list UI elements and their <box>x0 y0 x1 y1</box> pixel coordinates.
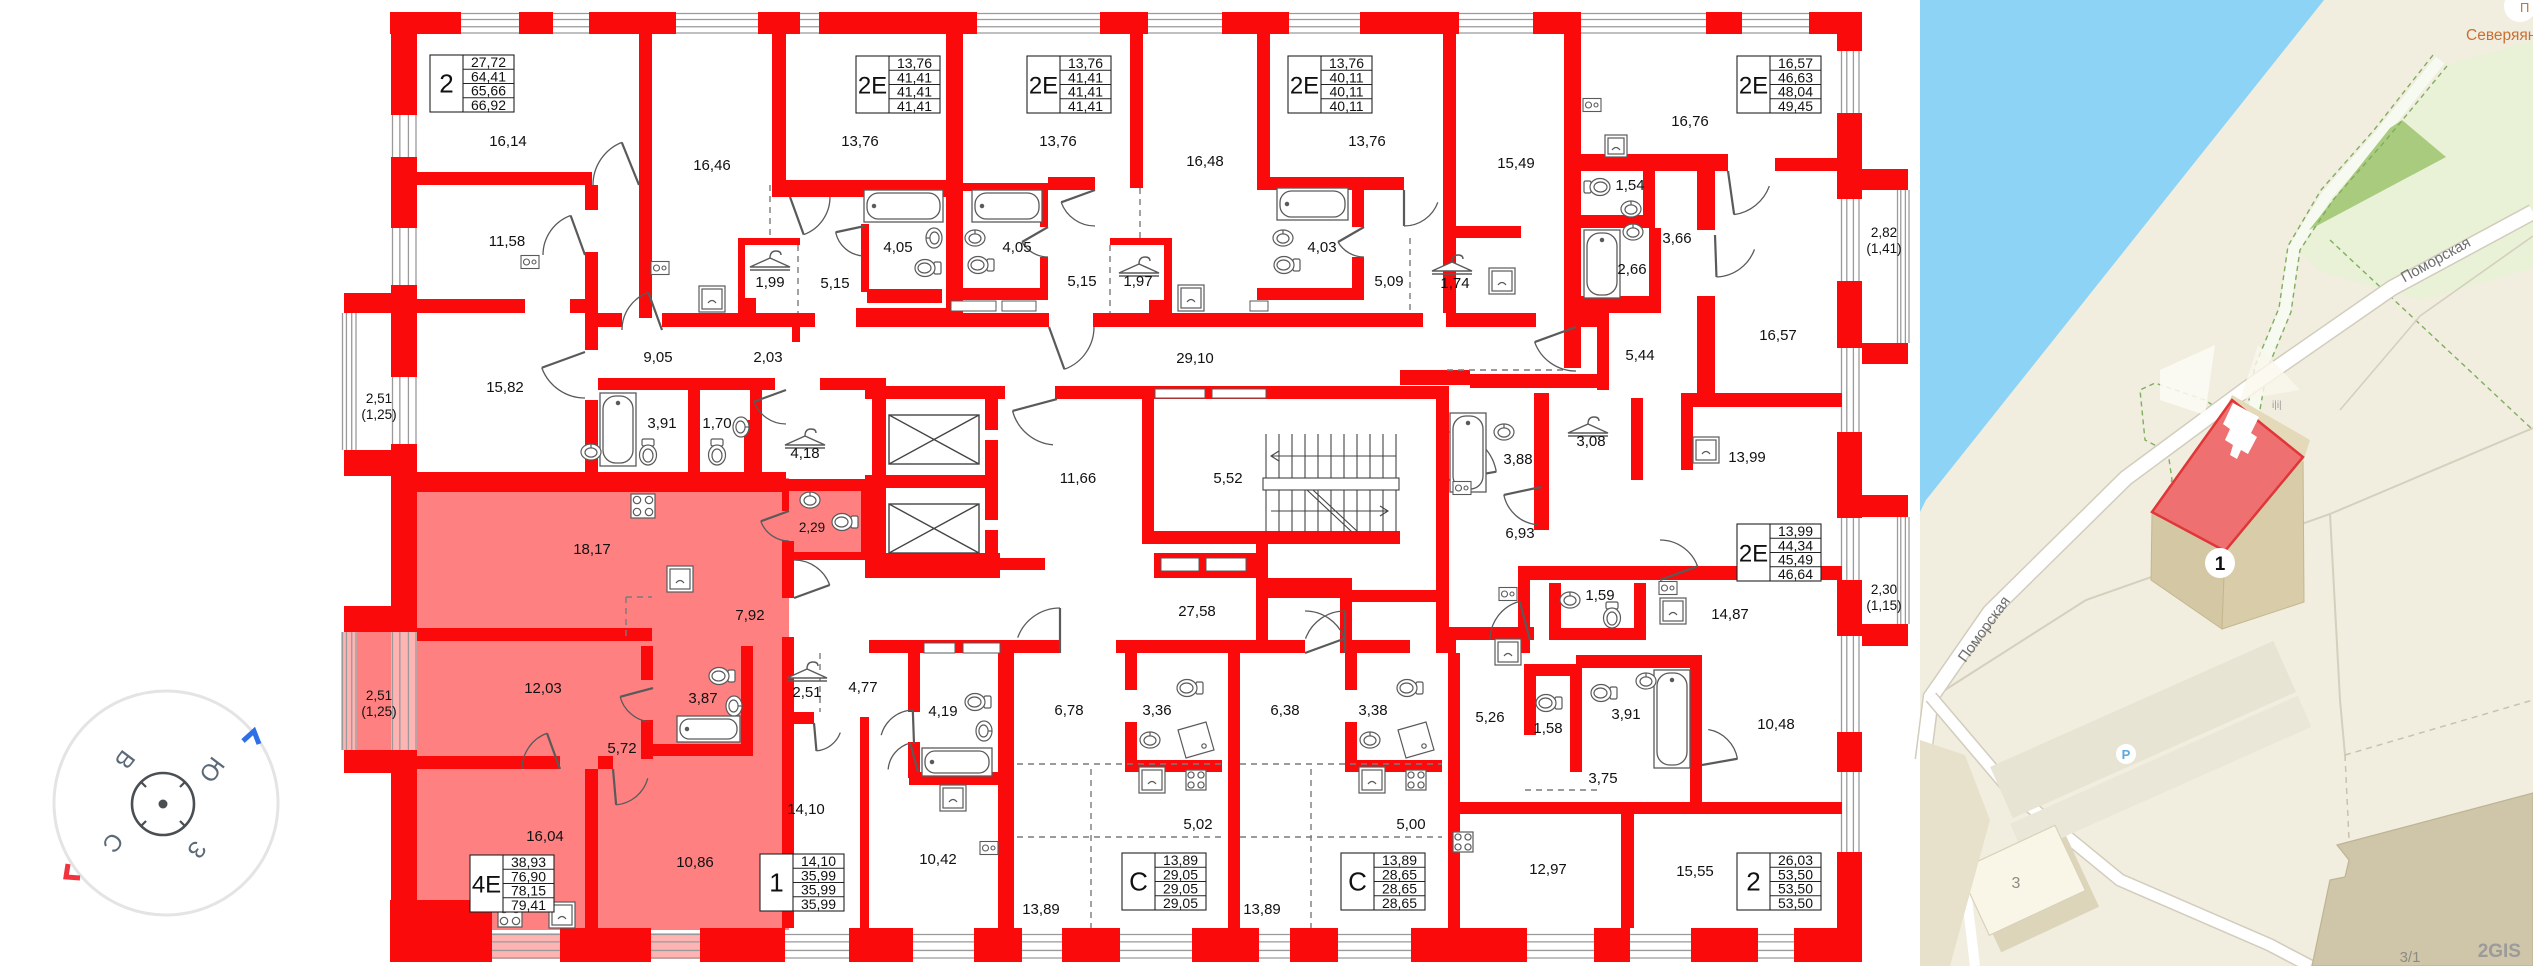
svg-text:1,99: 1,99 <box>755 274 784 291</box>
svg-text:3,91: 3,91 <box>647 415 676 432</box>
svg-text:2,51: 2,51 <box>366 391 392 406</box>
svg-text:16,48: 16,48 <box>1186 153 1224 170</box>
svg-text:29,10: 29,10 <box>1176 350 1214 367</box>
svg-text:10,48: 10,48 <box>1757 716 1795 733</box>
svg-text:2Е: 2Е <box>1290 73 1319 100</box>
svg-text:P: P <box>2122 747 2131 762</box>
svg-text:2,51: 2,51 <box>792 684 821 701</box>
svg-text:35,99: 35,99 <box>801 896 836 912</box>
svg-text:16,46: 16,46 <box>693 157 731 174</box>
svg-text:13,89: 13,89 <box>1243 901 1281 918</box>
svg-text:1,97: 1,97 <box>1123 273 1152 290</box>
svg-text:4,05: 4,05 <box>883 239 912 256</box>
svg-text:5,09: 5,09 <box>1374 273 1403 290</box>
svg-text:3,87: 3,87 <box>688 690 717 707</box>
svg-text:13,76: 13,76 <box>1039 133 1077 150</box>
svg-text:53,50: 53,50 <box>1778 895 1813 911</box>
svg-text:2Е: 2Е <box>1739 73 1768 100</box>
svg-text:2,29: 2,29 <box>799 520 825 535</box>
svg-text:2GIS: 2GIS <box>2478 941 2521 962</box>
svg-text:3,36: 3,36 <box>1142 702 1171 719</box>
svg-text:12,03: 12,03 <box>524 680 562 697</box>
svg-text:66,92: 66,92 <box>471 97 506 113</box>
svg-text:(1,15): (1,15) <box>1866 598 1901 613</box>
svg-text:2: 2 <box>1746 867 1760 897</box>
svg-text:4,19: 4,19 <box>928 703 957 720</box>
svg-text:Северяян: Северяян <box>2466 27 2533 44</box>
svg-text:11,66: 11,66 <box>1060 470 1096 487</box>
svg-text:С: С <box>1129 867 1148 897</box>
svg-text:15,82: 15,82 <box>486 379 524 396</box>
svg-text:i|i|: i|i| <box>2272 400 2282 411</box>
svg-text:79,41: 79,41 <box>511 897 546 913</box>
svg-text:15,49: 15,49 <box>1497 155 1535 172</box>
svg-text:16,57: 16,57 <box>1759 327 1797 344</box>
svg-text:41,41: 41,41 <box>897 98 932 114</box>
svg-text:3,91: 3,91 <box>1611 706 1640 723</box>
svg-text:2,51: 2,51 <box>366 688 392 703</box>
svg-text:4,03: 4,03 <box>1307 239 1336 256</box>
svg-text:5,00: 5,00 <box>1396 816 1425 833</box>
svg-text:3,88: 3,88 <box>1503 451 1532 468</box>
svg-text:5,02: 5,02 <box>1183 816 1212 833</box>
svg-text:6,93: 6,93 <box>1505 525 1534 542</box>
svg-text:9,05: 9,05 <box>643 349 672 366</box>
svg-text:2Е: 2Е <box>1739 541 1768 568</box>
svg-text:16,76: 16,76 <box>1671 113 1709 130</box>
svg-text:14,10: 14,10 <box>787 801 825 818</box>
svg-text:(1,25): (1,25) <box>361 407 396 422</box>
svg-text:3,08: 3,08 <box>1576 433 1605 450</box>
svg-text:1: 1 <box>769 868 783 898</box>
svg-text:3,75: 3,75 <box>1588 770 1617 787</box>
svg-text:10,86: 10,86 <box>676 854 714 871</box>
svg-text:12,97: 12,97 <box>1529 861 1567 878</box>
svg-text:1: 1 <box>2215 554 2226 575</box>
svg-text:4,77: 4,77 <box>848 679 877 696</box>
svg-text:(1,25): (1,25) <box>361 704 396 719</box>
svg-text:5,15: 5,15 <box>820 275 849 292</box>
svg-text:2,82: 2,82 <box>1871 225 1897 240</box>
svg-text:2,03: 2,03 <box>753 349 782 366</box>
svg-text:5,72: 5,72 <box>607 740 636 757</box>
svg-text:3,66: 3,66 <box>1662 230 1691 247</box>
svg-text:15,55: 15,55 <box>1676 863 1714 880</box>
svg-text:6,38: 6,38 <box>1270 702 1299 719</box>
svg-text:41,41: 41,41 <box>1068 98 1103 114</box>
svg-text:14,87: 14,87 <box>1711 606 1749 623</box>
svg-text:27,58: 27,58 <box>1178 603 1216 620</box>
svg-text:10,42: 10,42 <box>919 851 957 868</box>
svg-text:2: 2 <box>439 69 453 99</box>
svg-text:1,70: 1,70 <box>702 415 731 432</box>
svg-text:4Е: 4Е <box>472 872 501 899</box>
svg-text:5,44: 5,44 <box>1625 347 1654 364</box>
svg-text:1,54: 1,54 <box>1615 177 1644 194</box>
svg-text:29,05: 29,05 <box>1163 895 1198 911</box>
svg-text:49,45: 49,45 <box>1778 98 1813 114</box>
svg-text:4,18: 4,18 <box>790 445 819 462</box>
svg-text:46,64: 46,64 <box>1778 566 1813 582</box>
svg-text:7,92: 7,92 <box>735 607 764 624</box>
svg-text:11,58: 11,58 <box>489 233 525 250</box>
svg-text:1,74: 1,74 <box>1440 275 1469 292</box>
svg-text:2Е: 2Е <box>858 73 887 100</box>
svg-text:16,14: 16,14 <box>489 133 527 150</box>
svg-text:С: С <box>1348 867 1367 897</box>
svg-text:2,30: 2,30 <box>1871 582 1897 597</box>
svg-text:1,58: 1,58 <box>1533 720 1562 737</box>
svg-text:13,89: 13,89 <box>1022 901 1060 918</box>
svg-text:16,04: 16,04 <box>526 828 564 845</box>
svg-text:13,76: 13,76 <box>1348 133 1386 150</box>
svg-text:3/1: 3/1 <box>2400 949 2421 966</box>
svg-text:2,66: 2,66 <box>1617 261 1646 278</box>
svg-text:4,05: 4,05 <box>1002 239 1031 256</box>
svg-text:П: П <box>2520 0 2529 15</box>
svg-text:28,65: 28,65 <box>1382 895 1417 911</box>
svg-text:5,15: 5,15 <box>1067 273 1096 290</box>
svg-text:5,52: 5,52 <box>1213 470 1242 487</box>
svg-text:13,99: 13,99 <box>1728 449 1766 466</box>
svg-text:18,17: 18,17 <box>573 541 611 558</box>
svg-text:1,59: 1,59 <box>1585 587 1614 604</box>
svg-text:(1,41): (1,41) <box>1866 241 1901 256</box>
svg-text:13,76: 13,76 <box>841 133 879 150</box>
svg-text:6,78: 6,78 <box>1054 702 1083 719</box>
svg-text:40,11: 40,11 <box>1330 98 1364 114</box>
svg-text:3,38: 3,38 <box>1358 702 1387 719</box>
svg-text:5,26: 5,26 <box>1475 709 1504 726</box>
svg-text:3: 3 <box>2012 875 2021 892</box>
svg-text:2Е: 2Е <box>1029 73 1058 100</box>
